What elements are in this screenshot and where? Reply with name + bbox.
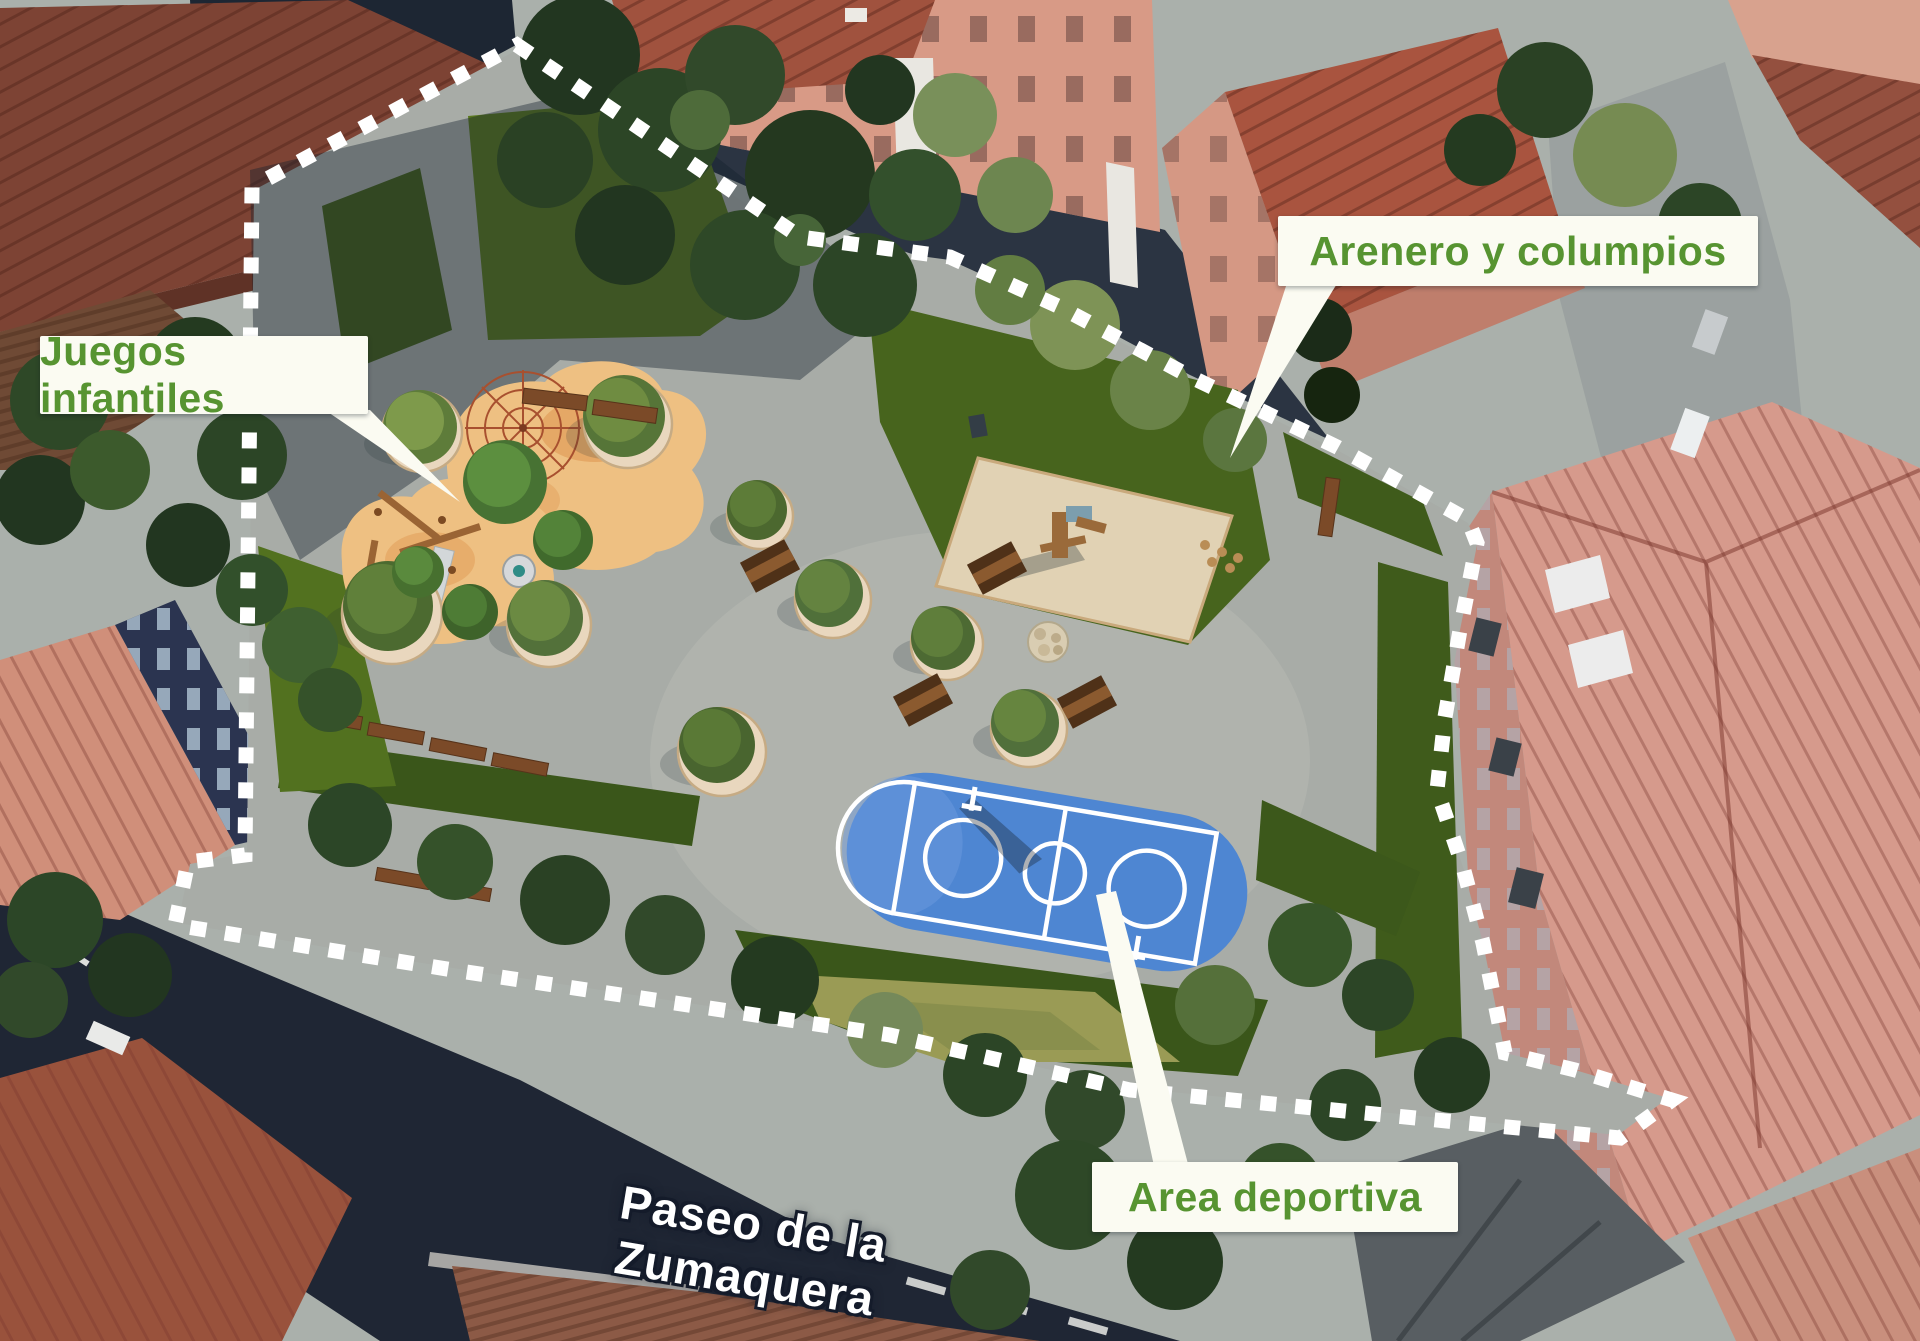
stone-circle xyxy=(1028,622,1068,662)
label-arenero-columpios: Arenero y columpios xyxy=(1278,216,1758,286)
label-area-text: Area deportiva xyxy=(1128,1174,1422,1221)
stair-tower xyxy=(1106,162,1138,288)
label-juegos-text: Juegos infantiles xyxy=(40,328,368,422)
carousel xyxy=(503,555,535,587)
label-area-deportiva: Area deportiva xyxy=(1092,1162,1458,1232)
label-arenero-text: Arenero y columpios xyxy=(1309,228,1726,275)
aerial-park-plan: Juegos infantiles Arenero y columpios Ar… xyxy=(0,0,1920,1341)
label-juegos-infantiles: Juegos infantiles xyxy=(40,336,368,414)
park-plan-graphic xyxy=(0,0,1920,1341)
